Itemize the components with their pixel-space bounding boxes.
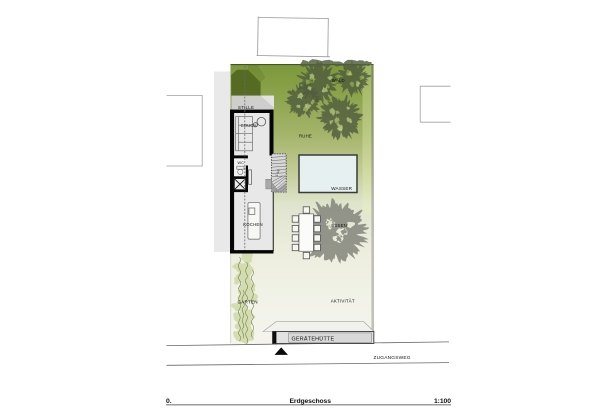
svg-text:AKTIVITÄT: AKTIVITÄT bbox=[331, 298, 355, 303]
svg-text:WC: WC bbox=[238, 161, 245, 165]
svg-text:GARTEN: GARTEN bbox=[238, 300, 258, 305]
svg-text:WASSER: WASSER bbox=[331, 186, 352, 191]
svg-text:ZUGANGSWEG: ZUGANGSWEG bbox=[374, 355, 411, 361]
svg-text:STILLE: STILLE bbox=[238, 105, 254, 110]
svg-text:Erdgeschoss: Erdgeschoss bbox=[290, 398, 332, 405]
svg-text:ESSEN: ESSEN bbox=[331, 223, 347, 228]
svg-text:COUCH: COUCH bbox=[241, 123, 257, 128]
svg-text:GERÄTEHÜTTE: GERÄTEHÜTTE bbox=[292, 336, 335, 343]
svg-text:KOCHEN: KOCHEN bbox=[243, 222, 263, 227]
svg-text:WALD: WALD bbox=[332, 78, 345, 83]
svg-text:RUHE: RUHE bbox=[299, 134, 312, 139]
svg-text:1:100: 1:100 bbox=[434, 398, 451, 405]
svg-text:0.: 0. bbox=[166, 398, 172, 405]
